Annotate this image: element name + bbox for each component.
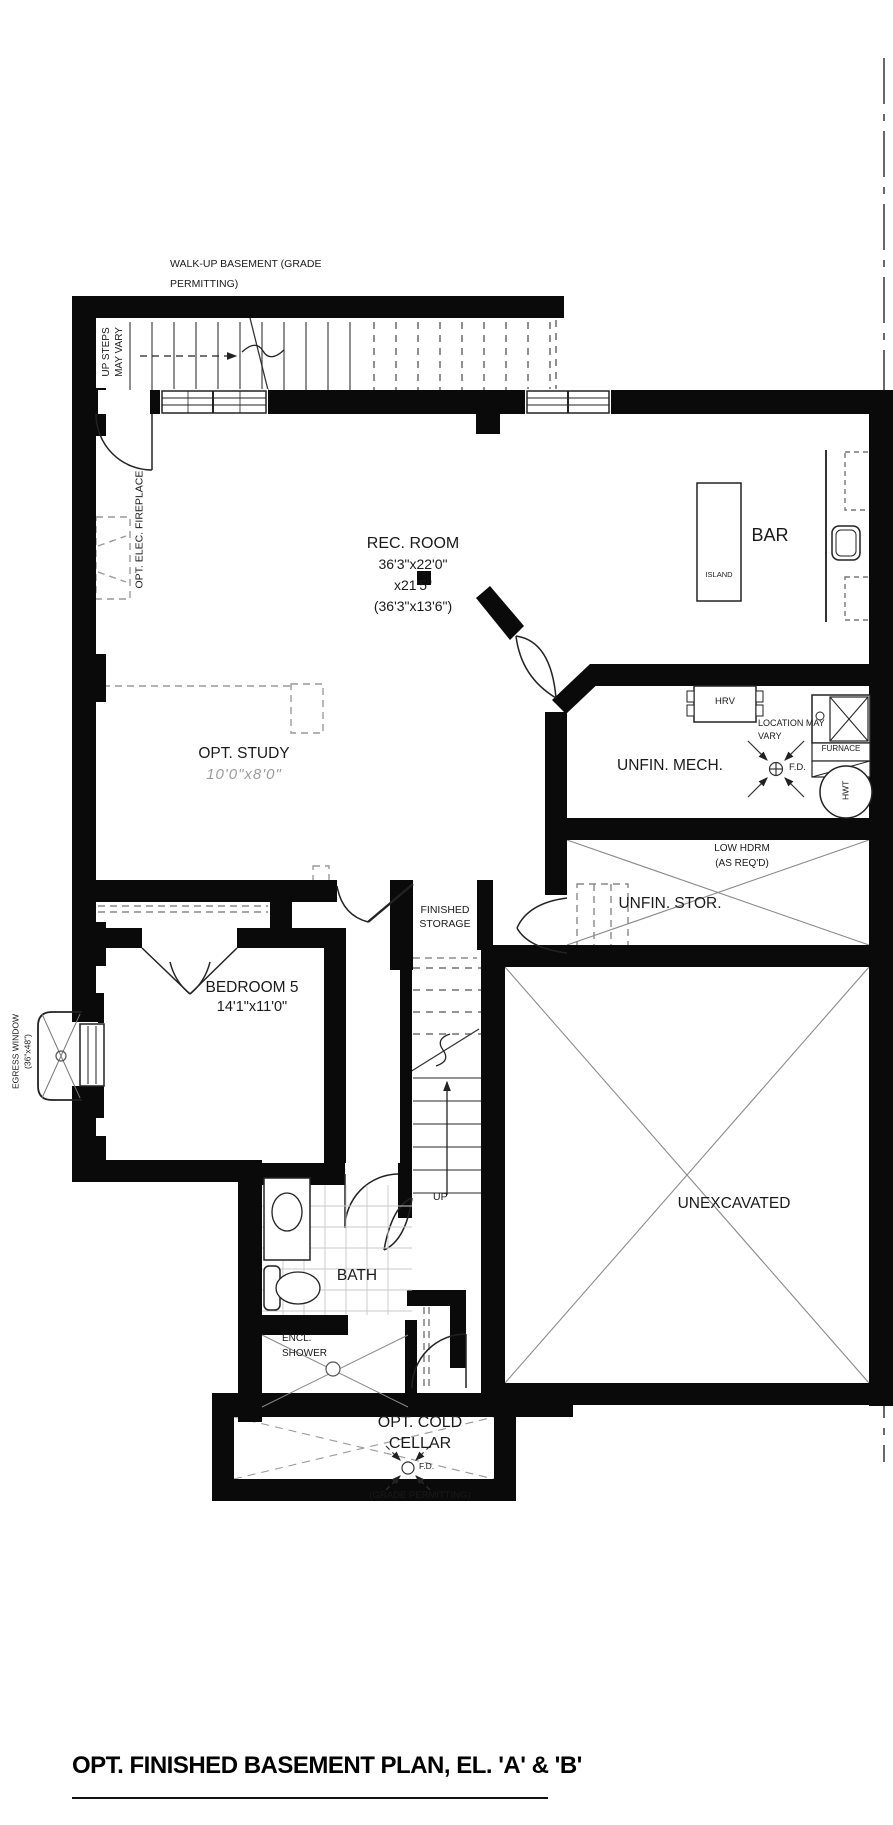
bar-upper-cabinet bbox=[845, 452, 871, 510]
small-dashed-box bbox=[313, 866, 329, 882]
bath-label: BATH bbox=[317, 1266, 397, 1285]
location-note: LOCATION MAY VARY bbox=[758, 717, 825, 743]
bath-vanity bbox=[264, 1178, 310, 1260]
island-label: ISLAND bbox=[697, 570, 741, 579]
study-name: OPT. STUDY bbox=[164, 744, 324, 763]
up-label: UP bbox=[433, 1191, 448, 1204]
main-stairs bbox=[410, 958, 481, 1195]
walls bbox=[72, 296, 893, 1501]
plan-title: OPT. FINISHED BASEMENT PLAN, EL. 'A' & '… bbox=[72, 1752, 582, 1780]
furnace-label: FURNACE bbox=[812, 744, 870, 754]
walkup-stairs bbox=[130, 318, 556, 392]
stor-door bbox=[517, 898, 567, 953]
bedroom-name: BEDROOM 5 bbox=[152, 978, 352, 997]
fireplace-outline bbox=[96, 517, 130, 599]
finished-storage-label: FINISHED STORAGE bbox=[403, 903, 487, 931]
cold-cellar-label: OPT. COLD CELLAR bbox=[350, 1412, 490, 1454]
shower-drain bbox=[326, 1362, 340, 1376]
rec-room-name: REC. ROOM bbox=[328, 534, 498, 554]
rec-room-window bbox=[162, 391, 266, 413]
bar-window bbox=[527, 391, 609, 413]
rec-room-dims: 36'3"x22'0" x21'5" (36'3"x13'6") bbox=[328, 554, 498, 617]
study-dims: 10'0"x8'0" bbox=[164, 766, 324, 785]
toilet bbox=[264, 1266, 320, 1310]
walkup-break-squiggle bbox=[242, 345, 284, 357]
bath-door bbox=[345, 1174, 398, 1228]
hrv-label: HRV bbox=[694, 696, 756, 708]
shower-label: ENCL. SHOWER bbox=[282, 1331, 327, 1361]
stairs-break-line bbox=[410, 1029, 479, 1072]
low-hdrm-note: LOW HDRM (AS REQ'D) bbox=[692, 842, 792, 871]
bedroom-dims: 14'1"x11'0" bbox=[152, 998, 352, 1016]
mech-door bbox=[516, 636, 556, 698]
fd-label-cellar: F.D. bbox=[419, 1461, 434, 1472]
bar-counter bbox=[826, 450, 860, 622]
stairs-break-squiggle bbox=[436, 1034, 450, 1066]
bar-upper-cabinet bbox=[845, 577, 871, 620]
study-post bbox=[291, 684, 323, 733]
title-underline bbox=[72, 1797, 548, 1799]
fd-label: F.D. bbox=[789, 762, 806, 774]
walkup-note: WALK-UP BASEMENT (GRADE PERMITTING) bbox=[170, 254, 322, 294]
unexcavated-label: UNEXCAVATED bbox=[654, 1194, 814, 1213]
bar-label: BAR bbox=[730, 524, 810, 547]
stor-label: UNFIN. STOR. bbox=[590, 894, 750, 913]
fireplace-note: OPT. ELEC. FIREPLACE bbox=[133, 455, 146, 605]
floor-plan-canvas: WALK-UP BASEMENT (GRADE PERMITTING) UP S… bbox=[0, 0, 893, 1825]
mech-label: UNFIN. MECH. bbox=[590, 756, 750, 775]
grade-note: (GRADE PERMITTING) bbox=[350, 1490, 490, 1502]
up-steps-note: UP STEPS MAY VARY bbox=[100, 309, 126, 395]
egress-note: EGRESS WINDOW (36"x48") bbox=[11, 987, 34, 1117]
egress-window bbox=[80, 1024, 104, 1086]
hwt-label: HWT bbox=[841, 770, 852, 810]
